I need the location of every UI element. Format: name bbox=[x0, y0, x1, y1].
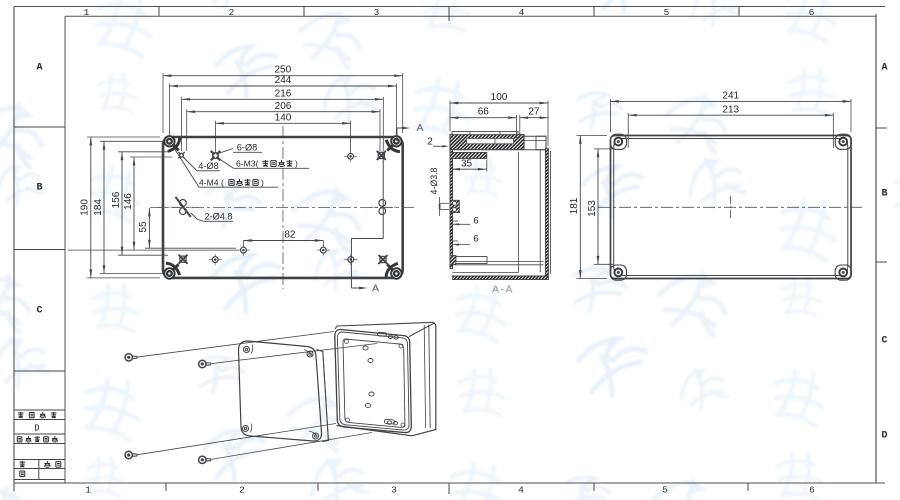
svg-text:3: 3 bbox=[391, 485, 397, 496]
svg-text:4-M4 (: 4-M4 ( bbox=[199, 177, 224, 187]
svg-text:2-Ø4.8: 2-Ø4.8 bbox=[204, 211, 232, 221]
svg-text:156: 156 bbox=[111, 191, 122, 208]
svg-text:4-Ø8: 4-Ø8 bbox=[198, 161, 218, 171]
svg-text:4: 4 bbox=[518, 485, 524, 496]
svg-text:6: 6 bbox=[809, 7, 815, 18]
svg-text:A: A bbox=[372, 283, 379, 295]
svg-text:5: 5 bbox=[664, 7, 670, 18]
svg-text:190: 190 bbox=[80, 199, 91, 216]
svg-text:140: 140 bbox=[275, 112, 292, 123]
svg-text:6-Ø8: 6-Ø8 bbox=[237, 143, 257, 153]
svg-text:4-Ø3.8: 4-Ø3.8 bbox=[429, 167, 439, 194]
svg-text:100: 100 bbox=[491, 92, 508, 103]
svg-text:6: 6 bbox=[809, 485, 815, 496]
svg-text:5: 5 bbox=[662, 485, 668, 496]
svg-text:6: 6 bbox=[473, 215, 478, 226]
svg-text:66: 66 bbox=[478, 107, 490, 118]
svg-text:): ) bbox=[261, 177, 264, 187]
svg-text:184: 184 bbox=[93, 199, 104, 216]
svg-text:4: 4 bbox=[519, 7, 525, 18]
svg-text:82: 82 bbox=[284, 230, 296, 241]
svg-text:A: A bbox=[416, 122, 423, 134]
svg-text:): ) bbox=[295, 159, 298, 169]
svg-text:206: 206 bbox=[275, 101, 292, 112]
svg-text:6: 6 bbox=[473, 234, 478, 245]
svg-text:D: D bbox=[882, 431, 888, 442]
svg-text:250: 250 bbox=[275, 65, 292, 76]
svg-text:2: 2 bbox=[427, 136, 433, 147]
svg-text:2: 2 bbox=[239, 485, 245, 496]
svg-text:213: 213 bbox=[722, 104, 739, 115]
svg-text:244: 244 bbox=[275, 75, 292, 86]
svg-text:3: 3 bbox=[374, 7, 380, 18]
svg-text:B: B bbox=[882, 189, 888, 200]
svg-text:146: 146 bbox=[123, 193, 134, 210]
svg-text:A: A bbox=[882, 63, 888, 74]
svg-text:241: 241 bbox=[722, 90, 739, 101]
svg-text:27: 27 bbox=[528, 107, 540, 118]
svg-text:2: 2 bbox=[229, 7, 235, 18]
svg-text:1: 1 bbox=[85, 485, 91, 496]
svg-text:35: 35 bbox=[461, 158, 473, 169]
svg-text:A: A bbox=[36, 63, 42, 74]
svg-text:D: D bbox=[34, 424, 39, 434]
svg-text:6-M3(: 6-M3( bbox=[236, 159, 259, 169]
svg-text:A-A: A-A bbox=[492, 284, 514, 296]
svg-text:153: 153 bbox=[587, 200, 598, 217]
svg-text:1: 1 bbox=[84, 7, 90, 18]
svg-text:55: 55 bbox=[138, 221, 149, 233]
svg-text:C: C bbox=[882, 336, 888, 347]
svg-text:181: 181 bbox=[569, 197, 580, 214]
svg-text:216: 216 bbox=[275, 88, 292, 99]
svg-text:C: C bbox=[36, 306, 42, 317]
svg-text:B: B bbox=[36, 183, 42, 194]
